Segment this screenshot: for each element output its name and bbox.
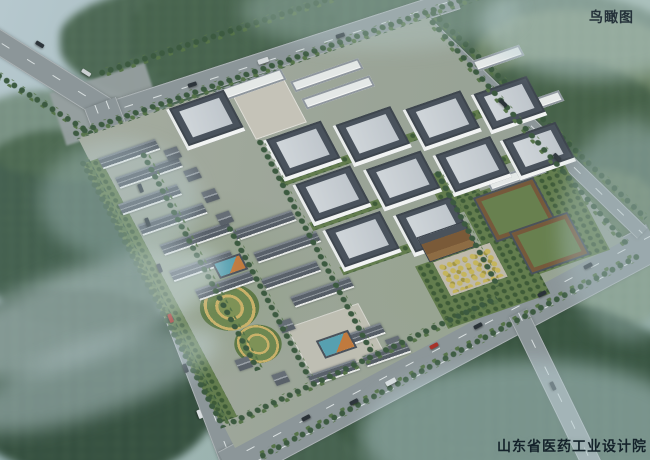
car (429, 342, 439, 350)
mist (40, 140, 200, 260)
mist (240, 0, 520, 50)
car (473, 322, 483, 330)
car (553, 153, 562, 162)
car (385, 377, 397, 387)
car (35, 40, 45, 48)
car (537, 290, 547, 298)
birds-eye-rendering: 鸟瞰图 山东省医药工业设计院 (0, 0, 650, 460)
car (196, 409, 203, 419)
car (301, 414, 311, 422)
car (499, 99, 508, 108)
credit-label: 山东省医药工业设计院 (497, 436, 647, 456)
foreground-layer (0, 0, 650, 460)
mist (560, 120, 650, 340)
car (257, 57, 269, 65)
car (81, 68, 92, 77)
car (349, 398, 359, 406)
view-title-label: 鸟瞰图 (589, 7, 634, 27)
car (187, 81, 197, 88)
